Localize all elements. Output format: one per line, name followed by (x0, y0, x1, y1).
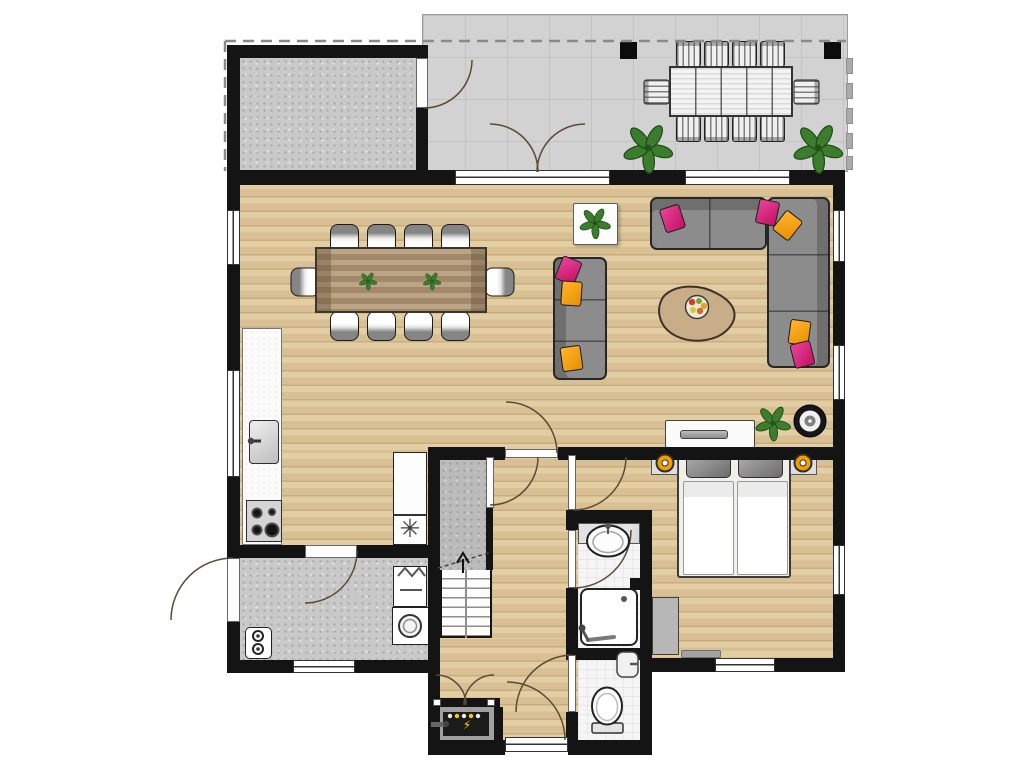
window-kitchen (227, 370, 240, 477)
door-bedroom (568, 455, 576, 510)
power-icon: ⚡ (460, 719, 474, 733)
meter-cupboard-hinge (433, 699, 441, 706)
terrace-post (824, 42, 841, 59)
stairs-upper-landing (440, 453, 492, 570)
window-living-right-2 (833, 345, 845, 400)
window-living-left (227, 210, 240, 265)
terrace-fence-segment (846, 108, 853, 124)
wall-segment (428, 740, 505, 755)
window-living-right-1 (833, 210, 845, 262)
meter-cupboard-hinge (487, 699, 495, 706)
terrace-post (620, 42, 637, 59)
wall-segment (227, 185, 240, 210)
outdoor-dining-table (669, 66, 793, 117)
floor-plan: ✳ ⚡ (0, 0, 1024, 768)
wall-segment (640, 510, 652, 755)
sideboard-tray (680, 430, 728, 439)
door-wc (568, 655, 576, 712)
door-stairs (486, 457, 494, 508)
side-entrance-door (227, 558, 240, 622)
dining-chair (330, 311, 359, 341)
wall-segment (578, 447, 845, 460)
wall-segment (227, 477, 240, 545)
washing-machine (392, 607, 429, 645)
dining-table-end (471, 249, 485, 311)
wall-segment (775, 658, 845, 672)
wall-segment (416, 45, 428, 58)
outdoor-chair (704, 41, 729, 67)
freezer-icon: ✳ (393, 515, 427, 543)
outdoor-chair (760, 116, 785, 142)
wall-segment (227, 545, 305, 558)
wall-segment (227, 170, 455, 185)
window-bedroom-bottom (715, 658, 775, 672)
outdoor-chair (732, 41, 757, 67)
terrace-fence-segment (846, 83, 853, 99)
wall-segment (227, 265, 240, 370)
outdoor-chair (644, 80, 670, 105)
wall-segment (566, 712, 578, 740)
wall-segment (833, 400, 845, 545)
wall-segment (227, 660, 293, 673)
dining-chair (404, 311, 433, 341)
terrace-fence-segment (846, 156, 853, 170)
side-table (573, 203, 618, 245)
wall-segment (833, 262, 845, 345)
outdoor-chair (760, 41, 785, 67)
cushion (559, 345, 583, 373)
wc-floor (578, 660, 640, 740)
door-bathroom (568, 530, 576, 588)
front-door (505, 737, 568, 752)
rug (681, 650, 721, 658)
terrace-fence-segment (846, 58, 853, 74)
dining-chair (485, 268, 515, 297)
dining-chair (367, 311, 396, 341)
outdoor-chair (704, 116, 729, 142)
wall-segment (610, 170, 685, 185)
wall-segment (428, 447, 440, 755)
wall-segment (790, 170, 845, 185)
window-utility (293, 660, 355, 673)
wall-segment (833, 185, 845, 210)
outdoor-chair (794, 80, 820, 105)
meter-cupboard-wall (494, 707, 503, 740)
door-arc-side-entrance (171, 558, 233, 620)
kitchen-sink (249, 420, 279, 464)
wall-segment (485, 447, 495, 457)
cushion (560, 280, 583, 306)
dining-table (315, 247, 487, 313)
door-kitchen-to-utility (305, 545, 357, 558)
wall-segment (566, 648, 652, 660)
mattress (737, 481, 788, 575)
wall-segment (486, 508, 493, 570)
wardrobe (652, 597, 679, 655)
staircase-center-rail (465, 570, 467, 638)
shower-tray (580, 588, 638, 646)
wall-segment (227, 45, 428, 58)
dining-chair (441, 311, 470, 341)
window-bedroom-right (833, 545, 845, 595)
water-heater (245, 627, 272, 659)
dining-table-end (317, 249, 331, 311)
laundry-basket (393, 566, 427, 607)
outdoor-chair (676, 116, 701, 142)
terrace-fence-segment (846, 133, 853, 149)
storage-room-floor (240, 58, 416, 170)
wall-segment (566, 588, 578, 655)
wall-segment (416, 108, 428, 175)
french-doors-to-terrace (455, 170, 610, 185)
mattress (683, 481, 734, 575)
door-storage-to-terrace (416, 58, 428, 108)
outdoor-chair (676, 41, 701, 67)
wall-segment (630, 578, 652, 590)
wall-segment (833, 595, 845, 658)
stove (246, 500, 282, 542)
outdoor-chair (732, 116, 757, 142)
door-living-to-hall (505, 449, 558, 458)
window-terrace (685, 170, 790, 185)
wall-segment (227, 45, 240, 175)
washbasin-counter (578, 523, 640, 544)
wall-segment (566, 510, 578, 530)
